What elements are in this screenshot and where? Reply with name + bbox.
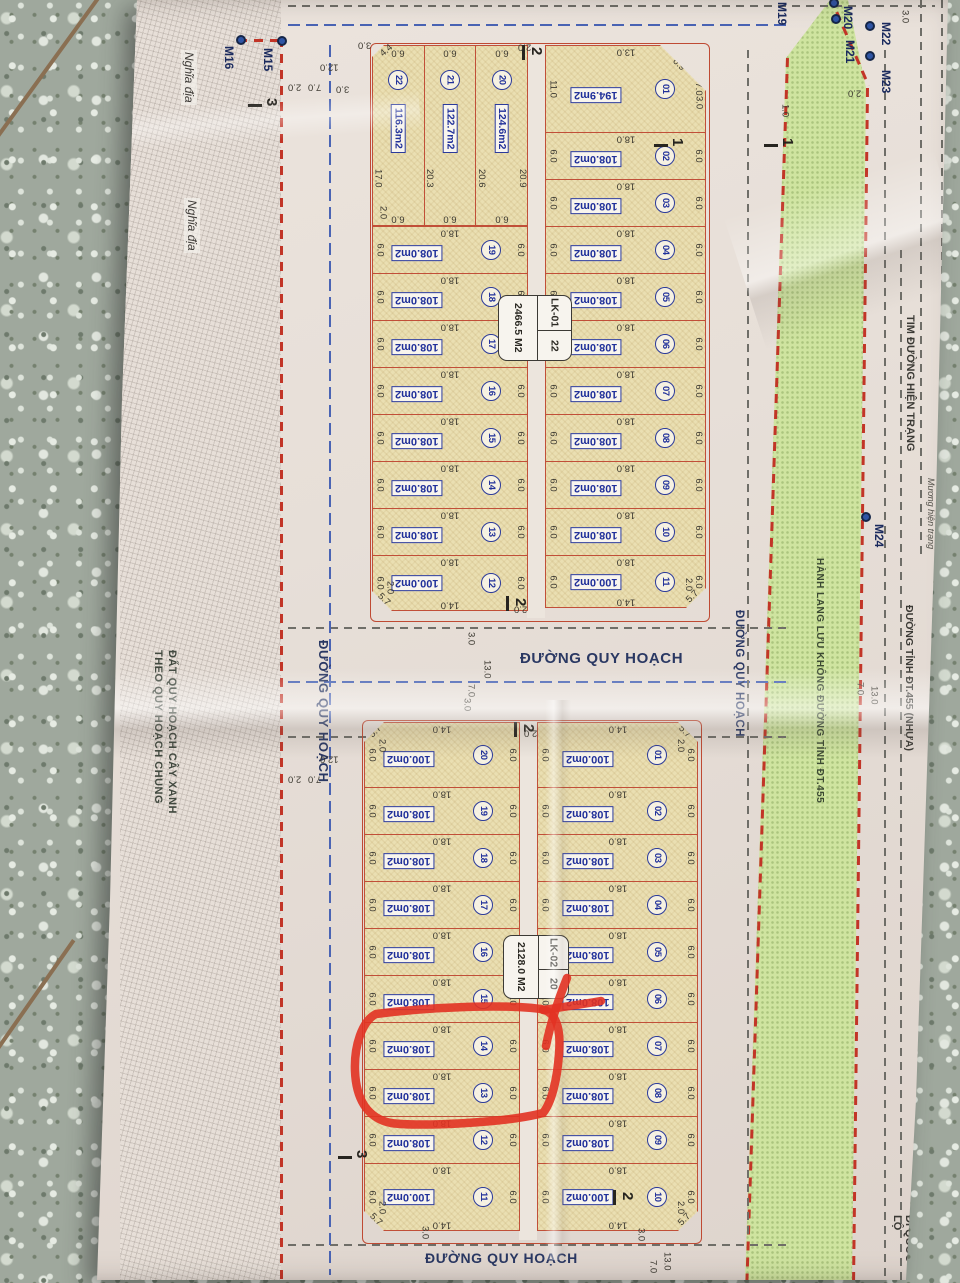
plot-area-label: 108.0m2 bbox=[391, 527, 442, 543]
plot-number: 09 bbox=[655, 475, 675, 495]
survey-marker-dot bbox=[236, 35, 246, 45]
block-name-count: LK-0220 bbox=[539, 936, 568, 998]
plot-cell: 18.06.06.0108.0m213 bbox=[364, 1069, 520, 1117]
dimension-label: 6.0 bbox=[686, 898, 696, 911]
dimension-label: 13.0 bbox=[662, 1252, 672, 1271]
block-count: 22 bbox=[538, 331, 571, 360]
plot-number: 08 bbox=[647, 1083, 667, 1103]
dimension-label: 6.0 bbox=[375, 525, 385, 538]
plot-number-text: 20 bbox=[478, 750, 488, 760]
dimension-label: 6.0 bbox=[508, 748, 518, 761]
plot-area-label: 108.0m2 bbox=[562, 1041, 613, 1057]
dimension-label: 18.0 bbox=[616, 557, 635, 567]
plot-area-label: 108.0m2 bbox=[391, 433, 442, 449]
dimension-label: 18.0 bbox=[433, 1071, 452, 1081]
plot-area-label: 108.0m2 bbox=[391, 292, 442, 308]
plot-cell: 18.014.06.06.0100.0m2115.72.0 bbox=[364, 1163, 520, 1231]
corner-dimension-label: 2.0 bbox=[676, 1201, 686, 1214]
block-count-text: 22 bbox=[548, 340, 560, 352]
plot-number-text: 04 bbox=[660, 245, 670, 255]
plot-area-label: 100.0m2 bbox=[383, 751, 434, 767]
dimension-label: 6.0 bbox=[367, 804, 377, 817]
dimension-label: 6.0 bbox=[516, 478, 526, 491]
dimension-label: 3.0 bbox=[636, 1228, 646, 1241]
plot-number: 11 bbox=[655, 572, 675, 592]
dimension-label: 6.0 bbox=[548, 149, 558, 162]
plot-number: 15 bbox=[473, 989, 493, 1009]
plot-area-label: 108.0m2 bbox=[570, 198, 621, 214]
dimension-label: 6.0 bbox=[686, 1133, 696, 1146]
dimension-label: 2.0 bbox=[848, 88, 861, 98]
dimension-label: 7.0 bbox=[308, 774, 321, 784]
dimension-label: 6.0 bbox=[367, 992, 377, 1005]
dimension-label: 6.0 bbox=[694, 478, 704, 491]
dimension-label: 6.0 bbox=[548, 196, 558, 209]
dimension-label: 2.0 bbox=[288, 82, 301, 92]
plot-number: 01 bbox=[655, 79, 675, 99]
plot-number-text: 09 bbox=[652, 1135, 662, 1145]
block-count: 20 bbox=[539, 970, 568, 998]
plot-number: 03 bbox=[655, 193, 675, 213]
dimension-label: 6.0 bbox=[694, 243, 704, 256]
plot-area-label: 108.0m2 bbox=[570, 292, 621, 308]
plot-number-text: 11 bbox=[478, 1192, 488, 1201]
plot-number: 03 bbox=[647, 848, 667, 868]
dimension-label: 6.0 bbox=[367, 898, 377, 911]
dimension-label: 6.0 bbox=[495, 214, 508, 224]
plot-number: 14 bbox=[481, 475, 501, 495]
dimension-label: 6.0 bbox=[548, 431, 558, 444]
survey-marker-dot bbox=[861, 512, 871, 522]
plot-number-text: 01 bbox=[660, 84, 670, 94]
plot-number-text: 13 bbox=[486, 527, 496, 537]
dimension-label: 6.0 bbox=[694, 196, 704, 209]
block-label-box: 2128.0 M2LK-0220 bbox=[503, 935, 569, 999]
plot-area-label: 108.0m2 bbox=[570, 151, 621, 167]
plot-number-text: 19 bbox=[486, 245, 496, 255]
dimension-label: 6.0 bbox=[495, 48, 508, 58]
dimension-label: 6.0 bbox=[375, 431, 385, 444]
plot-area-label: 100.0m2 bbox=[383, 1189, 434, 1205]
plot-cell: 18.06.06.0108.0m215 bbox=[364, 975, 520, 1023]
block-name: LK-02 bbox=[539, 936, 568, 970]
plot-cell: 18.06.06.0108.0m210 bbox=[545, 508, 706, 556]
dimension-label: 6.0 bbox=[516, 384, 526, 397]
dimension-label: 18.0 bbox=[441, 275, 460, 285]
section-marker-tick bbox=[338, 1156, 352, 1159]
dimension-label: 18.0 bbox=[441, 416, 460, 426]
plot-number-text: 17 bbox=[486, 339, 496, 349]
plot-area-label: 108.0m2 bbox=[383, 1135, 434, 1151]
dimension-label: 6.0 bbox=[548, 384, 558, 397]
dimension-label: 6.0 bbox=[540, 1133, 550, 1146]
plot-number: 11 bbox=[473, 1187, 493, 1207]
dimension-label: 18.0 bbox=[608, 883, 627, 893]
plot-number-text: 02 bbox=[652, 806, 662, 816]
corner-dimension-label: 2.0 bbox=[377, 1201, 387, 1214]
dimension-label: 6.0 bbox=[548, 525, 558, 538]
plot-cell: 18.06.06.0108.0m216 bbox=[372, 367, 528, 415]
dimension-label: 18.0 bbox=[616, 228, 635, 238]
section-marker-tick bbox=[764, 144, 778, 147]
dimension-label: 7.0 bbox=[855, 682, 865, 695]
plot-cell: 18.06.06.0108.0m203 bbox=[545, 179, 706, 227]
plot-area-label: 108.0m2 bbox=[391, 339, 442, 355]
plot-cell: 18.06.06.0108.0m208 bbox=[545, 414, 706, 462]
dimension-label: 6.0 bbox=[540, 804, 550, 817]
dimension-label: 6.0 bbox=[367, 1190, 377, 1203]
corner-dimension-label: 2.0 bbox=[385, 581, 395, 594]
block-area-total: 2128.0 M2 bbox=[504, 936, 539, 998]
dimension-label: 6.0 bbox=[694, 149, 704, 162]
dimension-label: 6.0 bbox=[694, 384, 704, 397]
dimension-label: 18.0 bbox=[433, 789, 452, 799]
dimension-label: 18.0 bbox=[608, 1165, 627, 1175]
plot-number-text: 18 bbox=[486, 292, 496, 302]
dimension-label: 20.9 bbox=[517, 169, 527, 188]
section-marker-tick bbox=[514, 722, 517, 737]
survey-marker-dot bbox=[831, 14, 841, 24]
plot-number: 16 bbox=[481, 381, 501, 401]
dimension-label: 18.0 bbox=[616, 510, 635, 520]
plot-area-label: 100.0m2 bbox=[570, 573, 621, 589]
survey-marker-label: M22 bbox=[880, 22, 892, 45]
dimension-label: 18.0 bbox=[608, 1118, 627, 1128]
plot-area-label: 116.3m2 bbox=[391, 104, 406, 153]
block-label-box: 2466.5 M2LK-0122 bbox=[498, 295, 572, 361]
plot-area-label: 108.0m2 bbox=[562, 947, 613, 963]
plot-number: 13 bbox=[481, 522, 501, 542]
dimension-label: 13.0 bbox=[616, 47, 635, 57]
dimension-label: 6.0 bbox=[367, 1086, 377, 1099]
plot-area-label: 108.0m2 bbox=[562, 1088, 613, 1104]
dimension-label: 6.0 bbox=[443, 214, 456, 224]
section-marker-tick bbox=[506, 596, 509, 611]
plot-number-text: 14 bbox=[478, 1041, 488, 1051]
section-marker: 2 bbox=[620, 1192, 635, 1200]
dimension-label: 3.0 bbox=[462, 698, 472, 711]
plot-number-text: 02 bbox=[660, 151, 670, 161]
plot-number: 21 bbox=[440, 70, 460, 90]
section-marker: 1 bbox=[670, 138, 685, 146]
dimension-label: 6.0 bbox=[367, 1039, 377, 1052]
block-area-total-text: 2466.5 M2 bbox=[512, 303, 524, 353]
dimension-label: 2.0 bbox=[288, 774, 301, 784]
plot-area-label: 108.0m2 bbox=[383, 994, 434, 1010]
dimension-label: 18.0 bbox=[616, 463, 635, 473]
dimension-label: 6.0 bbox=[392, 214, 405, 224]
plot-number: 06 bbox=[647, 989, 667, 1009]
plot-number-text: 05 bbox=[660, 292, 670, 302]
dimension-label: 3.0 bbox=[336, 84, 349, 94]
plot-number: 15 bbox=[481, 428, 501, 448]
dimension-label: 6.0 bbox=[540, 898, 550, 911]
survey-marker-label: M21 bbox=[844, 40, 856, 63]
plot-area-label: 108.0m2 bbox=[383, 947, 434, 963]
plot-number: 14 bbox=[473, 1036, 493, 1056]
dimension-label: 7.0 bbox=[308, 82, 321, 92]
dimension-label: 6.0 bbox=[516, 243, 526, 256]
dimension-label: 18.0 bbox=[441, 369, 460, 379]
plot-area-label: 108.0m2 bbox=[383, 853, 434, 869]
plot-cell: 18.014.06.06.0100.0m2125.72.0 bbox=[372, 555, 528, 611]
dimension-label: 18.0 bbox=[616, 275, 635, 285]
plot-area-label: 108.0m2 bbox=[391, 386, 442, 402]
dimension-label: 6.0 bbox=[375, 384, 385, 397]
plot-number-text: 05 bbox=[652, 947, 662, 957]
plot-number-text: 01 bbox=[652, 750, 662, 760]
dimension-label: 14.0 bbox=[433, 1220, 452, 1230]
dimension-label: 6.0 bbox=[548, 478, 558, 491]
dimension-label: 14.0 bbox=[616, 597, 635, 607]
plot-number-text: 09 bbox=[660, 480, 670, 490]
plot-number-text: 10 bbox=[652, 1192, 662, 1202]
plot-cell: 6.06.020.620.920124.6m2 bbox=[475, 45, 528, 226]
dimension-label: 6.0 bbox=[548, 575, 558, 588]
plot-number: 12 bbox=[473, 1130, 493, 1150]
plot-area-label: 108.0m2 bbox=[570, 386, 621, 402]
corner-dimension-label: 2.0 bbox=[676, 739, 686, 752]
dimension-label: 18.0 bbox=[616, 322, 635, 332]
paper-shadow-wrap: Nghĩa địa Nghĩa địa ĐẤT QUY HOẠCH CÂY XA… bbox=[0, 0, 960, 1280]
dimension-label: 6.0 bbox=[686, 1086, 696, 1099]
plot-cell: 6.06.020.321122.7m2 bbox=[424, 45, 477, 226]
block-area-total-text: 2128.0 M2 bbox=[515, 942, 527, 992]
plot-number: 09 bbox=[647, 1130, 667, 1150]
dimension-label: 6.0 bbox=[375, 243, 385, 256]
plot-area-label: 108.0m2 bbox=[391, 245, 442, 261]
plot-number-text: 21 bbox=[445, 75, 455, 85]
plot-cell: 14.06.06.0100.0m2205.72.0 bbox=[364, 722, 520, 788]
plot-number: 06 bbox=[655, 334, 675, 354]
dimension-label: 20.6 bbox=[476, 169, 486, 188]
dimension-label: 18.0 bbox=[616, 134, 635, 144]
dimension-label: 7.0 bbox=[648, 1260, 658, 1273]
dimension-label: 6.0 bbox=[540, 851, 550, 864]
plot-number-text: 07 bbox=[652, 1041, 662, 1051]
plot-cell: 18.06.06.0108.0m209 bbox=[545, 461, 706, 509]
dimension-label: 18.0 bbox=[608, 836, 627, 846]
photo-of-planning-map: { "colors":{"paper":"#e7dfd8","plot_fill… bbox=[0, 0, 960, 1280]
dimension-label: 6.0 bbox=[367, 945, 377, 958]
dimension-label: 6.0 bbox=[694, 337, 704, 350]
dimension-label: 6.0 bbox=[443, 48, 456, 58]
plot-number-text: 06 bbox=[660, 339, 670, 349]
plot-number: 02 bbox=[647, 801, 667, 821]
dimension-label: 18.0 bbox=[433, 883, 452, 893]
dimension-label: 6.0 bbox=[367, 851, 377, 864]
plot-cell: 18.06.06.0108.0m219 bbox=[364, 787, 520, 835]
plot-cell: 18.06.06.0108.0m204 bbox=[545, 226, 706, 274]
survey-marker-label: M16 bbox=[223, 46, 235, 69]
dimension-label: 6.0 bbox=[694, 525, 704, 538]
plot-number-text: 10 bbox=[660, 527, 670, 537]
dimension-label: 18.0 bbox=[441, 510, 460, 520]
plot-cell: 18.06.06.0108.0m207 bbox=[537, 1022, 698, 1070]
dimension-label: 6.0 bbox=[516, 431, 526, 444]
plot-number-text: 08 bbox=[660, 433, 670, 443]
block-name-count: LK-0122 bbox=[538, 296, 571, 360]
plot-area-label: 108.0m2 bbox=[570, 527, 621, 543]
dimension-label: 2.0 bbox=[524, 728, 537, 738]
plot-number-text: 08 bbox=[652, 1088, 662, 1098]
dimension-label: 18.0 bbox=[433, 836, 452, 846]
dimension-label: 6.0 bbox=[516, 576, 526, 589]
plot-number: 19 bbox=[481, 240, 501, 260]
plot-area-label: 108.0m2 bbox=[570, 339, 621, 355]
plot-area-label: 108.0m2 bbox=[383, 1041, 434, 1057]
dimension-label: 6.0 bbox=[375, 576, 385, 589]
plot-cell: 18.06.06.0108.0m214 bbox=[364, 1022, 520, 1070]
plot-area-label: 108.0m2 bbox=[562, 806, 613, 822]
plot-number-text: 12 bbox=[478, 1135, 488, 1145]
dimension-label: 6.0 bbox=[367, 748, 377, 761]
corner-dimension-label: 2.0 bbox=[377, 739, 387, 752]
plot-number-text: 16 bbox=[478, 947, 488, 957]
dimension-label: 18.0 bbox=[441, 322, 460, 332]
dimension-label: 18.0 bbox=[433, 1118, 452, 1128]
dimension-label: 2.0 bbox=[378, 206, 388, 219]
dimension-label: 6.0 bbox=[516, 525, 526, 538]
plot-cell: 18.06.06.0108.0m217 bbox=[364, 881, 520, 929]
block-area-total: 2466.5 M2 bbox=[499, 296, 538, 360]
dimension-label: 3.0 bbox=[900, 10, 910, 23]
survey-marker-dot bbox=[865, 21, 875, 31]
dimension-label: 3.0 bbox=[358, 40, 371, 50]
dimension-label: 18.0 bbox=[441, 228, 460, 238]
dimension-label: 6.0 bbox=[375, 290, 385, 303]
dimension-label: 2.0 bbox=[518, 42, 531, 52]
plot-area-label: 194.9m2 bbox=[570, 87, 621, 103]
plot-cell: 18.014.06.06.0100.0m2105.72.0 bbox=[537, 1163, 698, 1231]
plot-cell: 18.06.06.0108.0m207 bbox=[545, 367, 706, 415]
dimension-label: 6.0 bbox=[694, 431, 704, 444]
dimension-label: 14.0 bbox=[441, 600, 460, 610]
plot-area-label: 108.0m2 bbox=[562, 994, 613, 1010]
dimension-label: 18.0 bbox=[433, 977, 452, 987]
plot-cell: 18.06.06.0108.0m208 bbox=[537, 1069, 698, 1117]
dimension-label: 6.0 bbox=[540, 1086, 550, 1099]
dimension-label: 6.0 bbox=[540, 1039, 550, 1052]
block-name: LK-01 bbox=[538, 296, 571, 331]
dimension-label: 6.0 bbox=[367, 1133, 377, 1146]
plot-area-label: 108.0m2 bbox=[570, 480, 621, 496]
dimension-label: 6.0 bbox=[686, 851, 696, 864]
section-marker: 2 bbox=[529, 47, 544, 55]
dimension-label: 6.0 bbox=[540, 748, 550, 761]
plot-cell: 18.06.06.0108.0m214 bbox=[372, 461, 528, 509]
dimension-label: 13.0 bbox=[482, 660, 492, 679]
survey-marker-label: M24 bbox=[873, 524, 885, 547]
plot-area-label: 108.0m2 bbox=[383, 900, 434, 916]
survey-marker-dot bbox=[829, 0, 839, 8]
dimension-label: 14.0 bbox=[608, 1220, 627, 1230]
dimension-label: 6.0 bbox=[508, 1039, 518, 1052]
plot-number-text: 13 bbox=[478, 1088, 488, 1098]
plot-number-text: 15 bbox=[478, 994, 488, 1004]
plot-number: 20 bbox=[492, 70, 512, 90]
plot-cell: 18.06.06.0108.0m213 bbox=[372, 508, 528, 556]
plot-area-label: 124.6m2 bbox=[494, 104, 509, 153]
dimension-label: 11.0 bbox=[548, 80, 558, 98]
plot-cell: 18.06.06.0108.0m216 bbox=[364, 928, 520, 976]
dimension-label: 18.0 bbox=[441, 557, 460, 567]
dimension-label: 18.0 bbox=[616, 181, 635, 191]
plot-number-text: 16 bbox=[486, 386, 496, 396]
plot-number: 02 bbox=[655, 146, 675, 166]
dimension-label: 13.0 bbox=[869, 686, 879, 705]
plot-number-text: 19 bbox=[478, 806, 488, 816]
dimension-label: 6.0 bbox=[508, 851, 518, 864]
dimension-label: 6.0 bbox=[548, 243, 558, 256]
plot-cell: 18.06.06.0108.0m204 bbox=[537, 881, 698, 929]
block-name-text: LK-01 bbox=[548, 298, 560, 327]
paper: Nghĩa địa Nghĩa địa ĐẤT QUY HOẠCH CÂY XA… bbox=[0, 0, 960, 1280]
plot-area-label: 122.7m2 bbox=[443, 104, 458, 153]
dimension-label: 18.0 bbox=[616, 369, 635, 379]
dimension-label: 6.0 bbox=[686, 1190, 696, 1203]
dimension-label: 6.0 bbox=[686, 748, 696, 761]
dimension-label: 14.0 bbox=[608, 724, 627, 734]
plot-number: 05 bbox=[647, 942, 667, 962]
plot-number: 16 bbox=[473, 942, 493, 962]
plot-number-text: 03 bbox=[660, 198, 670, 208]
section-marker: 1 bbox=[780, 138, 795, 146]
plot-number: 07 bbox=[647, 1036, 667, 1056]
plot-number-text: 11 bbox=[660, 577, 670, 586]
plot-number-text: 06 bbox=[652, 994, 662, 1004]
plot-cell: 18.06.06.0108.0m209 bbox=[537, 1116, 698, 1164]
generated-map-content: 6.06.017.022116.3m26.06.020.321122.7m26.… bbox=[0, 0, 960, 1280]
plot-area-label: 108.0m2 bbox=[562, 900, 613, 916]
plot-number-text: 03 bbox=[652, 853, 662, 863]
section-marker-tick bbox=[248, 104, 262, 107]
plot-area-label: 108.0m2 bbox=[562, 853, 613, 869]
dimension-label: 18.0 bbox=[433, 1165, 452, 1175]
dimension-label: 3.0 bbox=[420, 1226, 430, 1239]
plot-number-text: 07 bbox=[660, 386, 670, 396]
dimension-label: 6.0 bbox=[686, 804, 696, 817]
dimension-label: 18.0 bbox=[608, 977, 627, 987]
dimension-label: 18.0 bbox=[608, 930, 627, 940]
plot-cell: 18.06.06.0108.0m203 bbox=[537, 834, 698, 882]
plot-number: 07 bbox=[655, 381, 675, 401]
plot-number-text: 20 bbox=[497, 75, 507, 85]
plot-area-label: 108.0m2 bbox=[391, 480, 442, 496]
survey-marker-label: M20 bbox=[842, 6, 854, 29]
dimension-label: 2.0 bbox=[514, 604, 527, 614]
dimension-label: 6.0 bbox=[508, 1133, 518, 1146]
plot-area-label: 100.0m2 bbox=[562, 751, 613, 767]
dimension-label: 18.0 bbox=[433, 1024, 452, 1034]
plot-number-text: 17 bbox=[478, 900, 488, 910]
dimension-label: 7.0 bbox=[466, 684, 476, 697]
section-marker: 3 bbox=[264, 98, 279, 106]
plot-cell: 18.06.06.0108.0m218 bbox=[364, 834, 520, 882]
plot-cell: 18.014.06.06.0100.0m2115.72.0 bbox=[545, 555, 706, 608]
plot-cell: 18.06.06.0108.0m215 bbox=[372, 414, 528, 462]
dimension-label: 6.0 bbox=[540, 1190, 550, 1203]
plot-area-label: 108.0m2 bbox=[570, 245, 621, 261]
dimension-label: 6.0 bbox=[375, 337, 385, 350]
plot-number-text: 04 bbox=[652, 900, 662, 910]
survey-marker-label: M15 bbox=[262, 48, 274, 71]
plot-area-label: 108.0m2 bbox=[570, 433, 621, 449]
plot-number: 19 bbox=[473, 801, 493, 821]
plot-number-text: 22 bbox=[394, 75, 404, 85]
dimension-label: 6.0 bbox=[686, 945, 696, 958]
block-count-text: 20 bbox=[547, 978, 559, 990]
